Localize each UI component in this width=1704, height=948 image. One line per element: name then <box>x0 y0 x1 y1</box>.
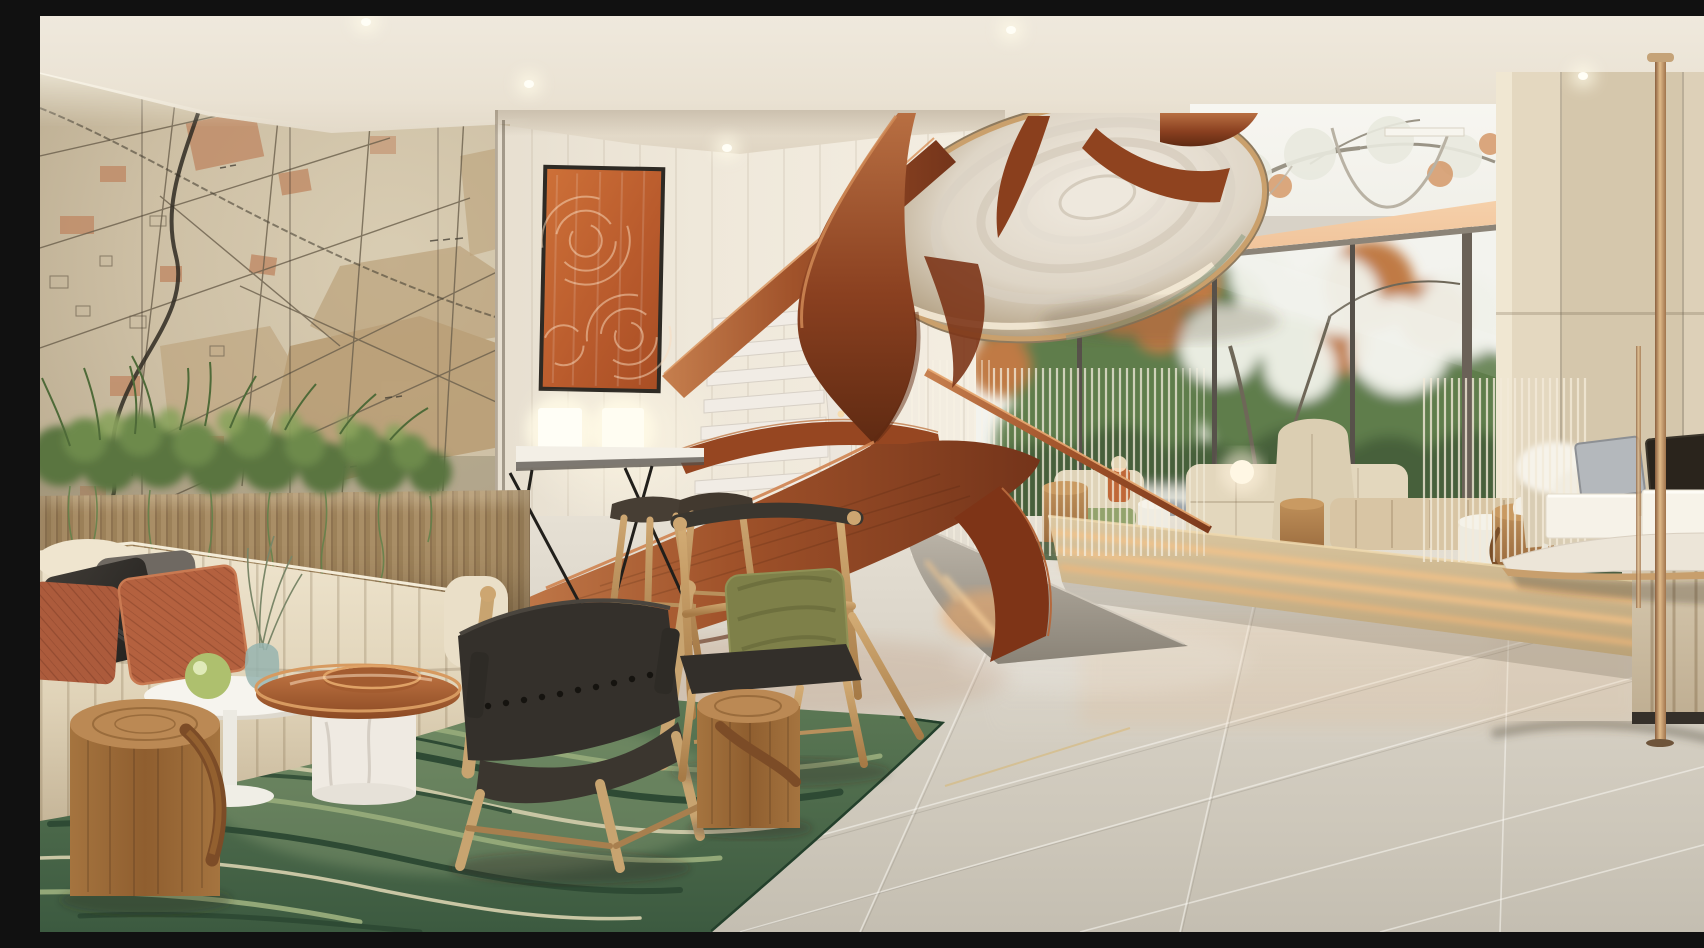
downlight <box>1578 72 1588 80</box>
foreground-furniture <box>40 16 1704 932</box>
black-lounge-chair <box>450 580 700 884</box>
terracotta-pillow <box>40 581 121 685</box>
green-glass-ball <box>185 653 231 699</box>
downlight <box>524 80 534 88</box>
downlight <box>722 144 732 152</box>
downlight <box>361 18 371 26</box>
lobby-rendering: Photorealistic rendering of a hotel lobb… <box>40 16 1704 932</box>
log-stool <box>688 689 812 839</box>
log-stool <box>60 699 232 915</box>
downlight <box>1006 26 1016 34</box>
